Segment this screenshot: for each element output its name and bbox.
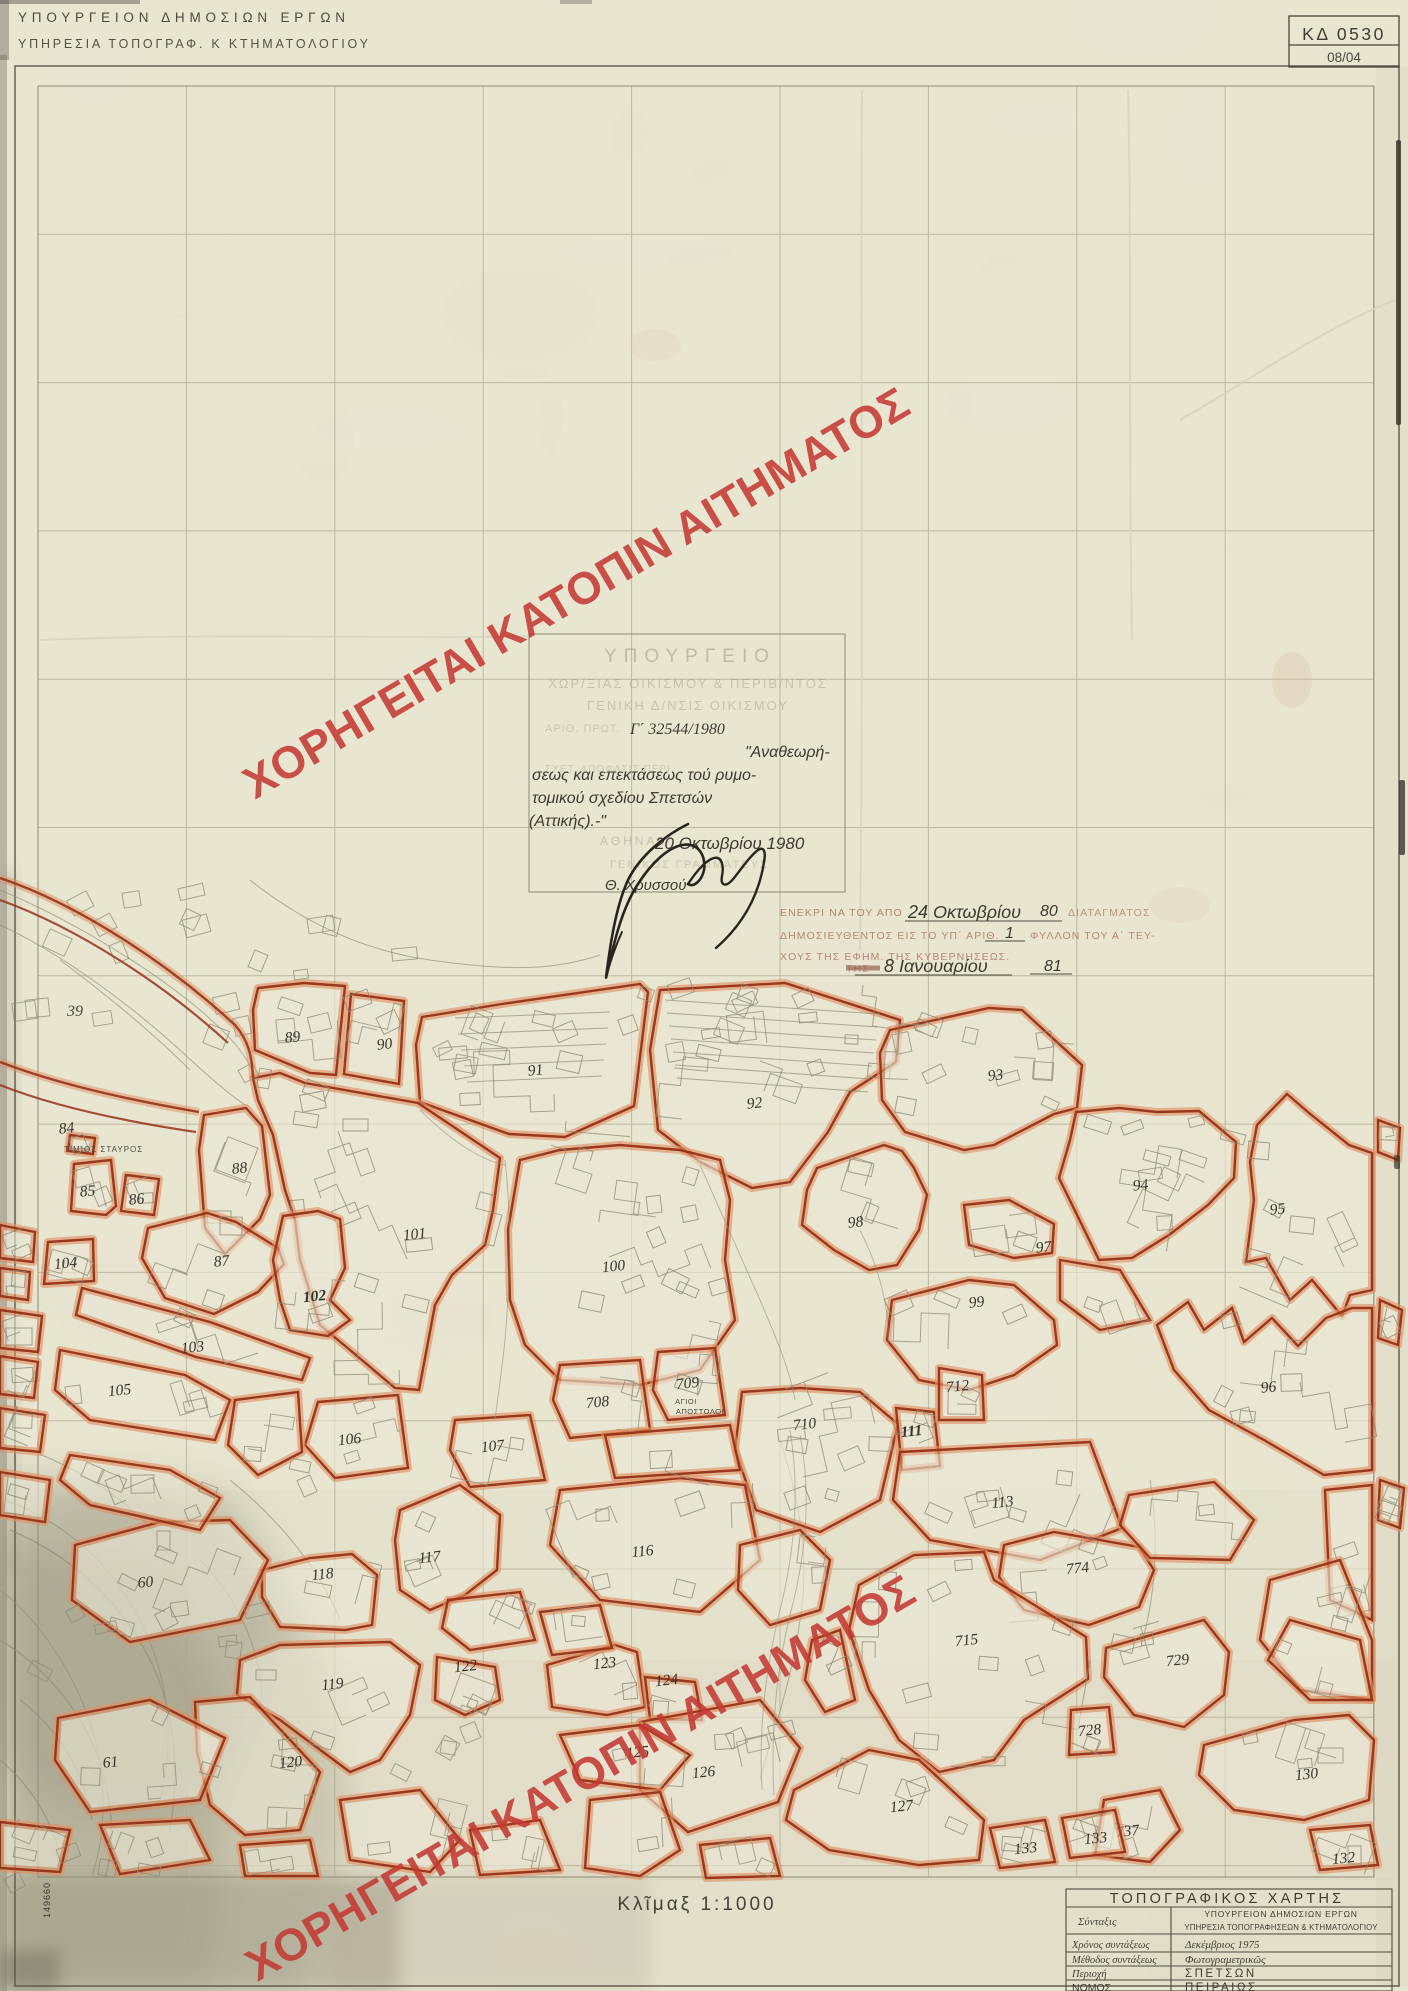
svg-text:60: 60 bbox=[137, 1573, 154, 1592]
svg-text:ΚΔ 0530: ΚΔ 0530 bbox=[1302, 24, 1386, 44]
svg-text:1: 1 bbox=[1005, 925, 1014, 942]
svg-text:774: 774 bbox=[1065, 1559, 1090, 1578]
svg-text:Περιοχή: Περιοχή bbox=[1071, 1969, 1107, 1980]
svg-text:132: 132 bbox=[1331, 1849, 1356, 1868]
svg-text:119: 119 bbox=[321, 1675, 345, 1694]
svg-text:149660: 149660 bbox=[42, 1882, 52, 1918]
svg-text:Σύνταξις: Σύνταξις bbox=[1077, 1916, 1117, 1928]
svg-text:105: 105 bbox=[107, 1381, 132, 1400]
svg-text:100: 100 bbox=[601, 1257, 626, 1276]
svg-text:ΣΠΕΤΣΩΝ: ΣΠΕΤΣΩΝ bbox=[1185, 1968, 1257, 1980]
svg-text:20 Οκτωβρίου 1980: 20 Οκτωβρίου 1980 bbox=[654, 834, 805, 853]
svg-text:92: 92 bbox=[746, 1094, 763, 1113]
svg-text:709: 709 bbox=[675, 1374, 700, 1393]
svg-text:ΥΠΟΥΡΓΕΙΟΝ ΔΗΜΟΣΙΩΝ ΕΡΓΩΝ: ΥΠΟΥΡΓΕΙΟΝ ΔΗΜΟΣΙΩΝ ΕΡΓΩΝ bbox=[1204, 1909, 1357, 1919]
svg-text:102: 102 bbox=[302, 1287, 327, 1306]
svg-text:124: 124 bbox=[654, 1671, 679, 1690]
svg-text:85: 85 bbox=[79, 1182, 96, 1201]
svg-text:"Αναθεωρή-: "Αναθεωρή- bbox=[745, 744, 830, 761]
svg-text:101: 101 bbox=[402, 1225, 427, 1244]
svg-text:130: 130 bbox=[1294, 1765, 1319, 1784]
svg-text:ΦΥΛΛΟΝ ΤΟΥ Α΄ ΤΕΥ-: ΦΥΛΛΟΝ ΤΟΥ Α΄ ΤΕΥ- bbox=[1030, 930, 1156, 942]
svg-text:ΑΡΙΘ. ΠΡΩΤ.: ΑΡΙΘ. ΠΡΩΤ. bbox=[545, 723, 620, 735]
svg-text:ΥΠΗΡΕΣΙΑ ΤΟΠΟΓΡΑΦ. Κ ΚΤΗΜΑΤΟΛΟ: ΥΠΗΡΕΣΙΑ ΤΟΠΟΓΡΑΦ. Κ ΚΤΗΜΑΤΟΛΟΓΙΟΥ bbox=[18, 37, 371, 51]
svg-text:81: 81 bbox=[1044, 958, 1062, 975]
svg-text:120: 120 bbox=[278, 1753, 303, 1772]
svg-text:98: 98 bbox=[847, 1213, 864, 1232]
svg-text:ΕΝΕΚΡΙ ΝΑ ΤΟΥ ΑΠΟ: ΕΝΕΚΡΙ ΝΑ ΤΟΥ ΑΠΟ bbox=[780, 907, 903, 919]
svg-text:728: 728 bbox=[1077, 1721, 1102, 1740]
svg-text:ΔΙΑΤΑΓΜΑΤΟΣ: ΔΙΑΤΑΓΜΑΤΟΣ bbox=[1068, 907, 1151, 919]
svg-text:Κλῖμαξ 1:1000: Κλῖμαξ 1:1000 bbox=[617, 1894, 776, 1915]
svg-text:Δεκέμβριος 1975: Δεκέμβριος 1975 bbox=[1184, 1939, 1260, 1951]
svg-text:39: 39 bbox=[66, 1003, 83, 1020]
svg-text:107: 107 bbox=[480, 1437, 506, 1456]
svg-text:ΑΓΙΟΙ: ΑΓΙΟΙ bbox=[675, 1397, 697, 1406]
svg-text:106: 106 bbox=[337, 1430, 362, 1449]
svg-text:σεως και επεκτάσεως τού ρυμο-: σεως και επεκτάσεως τού ρυμο- bbox=[532, 767, 756, 784]
svg-text:Χρόνος συντάξεως: Χρόνος συντάξεως bbox=[1071, 1940, 1150, 1951]
svg-text:116: 116 bbox=[631, 1542, 655, 1561]
svg-text:ΑΠΟΣΤΟΛΟΙ: ΑΠΟΣΤΟΛΟΙ bbox=[676, 1407, 724, 1416]
svg-text:ΝΟΜΟΣ: ΝΟΜΟΣ bbox=[1072, 1982, 1112, 1991]
svg-text:712: 712 bbox=[945, 1377, 970, 1396]
svg-text:ΔΗΜΟΣΙΕΥΘΕΝΤΟΣ ΕΙΣ ΤΟ ΥΠ΄ ΑΡΙΘ: ΔΗΜΟΣΙΕΥΘΕΝΤΟΣ ΕΙΣ ΤΟ ΥΠ΄ ΑΡΙΘ. bbox=[780, 930, 1000, 942]
svg-text:87: 87 bbox=[213, 1252, 231, 1271]
svg-text:Θ. Χρυσσού: Θ. Χρυσσού bbox=[605, 877, 687, 894]
svg-text:126: 126 bbox=[691, 1763, 716, 1782]
svg-text:ΤΟΠΟΓΡΑΦΙΚΟΣ ΧΑΡΤΗΣ: ΤΟΠΟΓΡΑΦΙΚΟΣ ΧΑΡΤΗΣ bbox=[1110, 1891, 1345, 1907]
svg-text:103: 103 bbox=[180, 1338, 205, 1357]
svg-text:8 Ιανουαρίου: 8 Ιανουαρίου bbox=[884, 956, 988, 976]
svg-text:ΥΠΗΡΕΣΙΑ ΤΟΠΟΓΡΑΦΗΣΕΩΝ & ΚΤΗΜΑ: ΥΠΗΡΕΣΙΑ ΤΟΠΟΓΡΑΦΗΣΕΩΝ & ΚΤΗΜΑΤΟΛΟΓΙΟΥ bbox=[1184, 1923, 1378, 1932]
svg-text:ΧΩΡ/ΞΙΑΣ ΟΙΚΙΣΜΟΥ & ΠΕΡΙΒ/ΝΤΟΣ: ΧΩΡ/ΞΙΑΣ ΟΙΚΙΣΜΟΥ & ΠΕΡΙΒ/ΝΤΟΣ bbox=[548, 676, 828, 691]
svg-text:113: 113 bbox=[991, 1493, 1015, 1512]
svg-text:97: 97 bbox=[1035, 1238, 1053, 1257]
svg-text:123: 123 bbox=[592, 1654, 617, 1673]
svg-text:24 Οκτωβρίου: 24 Οκτωβρίου bbox=[907, 902, 1021, 922]
svg-text:Μέθοδος συντάξεως: Μέθοδος συντάξεως bbox=[1071, 1955, 1157, 1966]
svg-text:91: 91 bbox=[527, 1061, 544, 1080]
svg-text:122: 122 bbox=[453, 1657, 478, 1676]
svg-text:715: 715 bbox=[954, 1631, 979, 1650]
svg-text:127: 127 bbox=[889, 1797, 915, 1816]
svg-text:133: 133 bbox=[1013, 1839, 1038, 1858]
svg-text:93: 93 bbox=[987, 1066, 1004, 1085]
svg-text:84: 84 bbox=[58, 1119, 75, 1138]
svg-text:ΥΠΟΥΡΓΕΙΟ: ΥΠΟΥΡΓΕΙΟ bbox=[604, 646, 776, 667]
svg-text:104: 104 bbox=[53, 1254, 78, 1273]
svg-text:Γ΄ 32544/1980: Γ΄ 32544/1980 bbox=[629, 721, 725, 738]
svg-text:61: 61 bbox=[102, 1753, 119, 1772]
svg-text:ΓΕΝΙΚΗ Δ/ΝΣΙΣ ΟΙΚΙΣΜΟΥ: ΓΕΝΙΚΗ Δ/ΝΣΙΣ ΟΙΚΙΣΜΟΥ bbox=[587, 698, 789, 713]
svg-text:(Αττικής).-": (Αττικής).-" bbox=[529, 813, 607, 830]
svg-text:ΤΙΜΙΟΣ ΣΤΑΥΡΟΣ: ΤΙΜΙΟΣ ΣΤΑΥΡΟΣ bbox=[64, 1145, 143, 1154]
svg-text:88: 88 bbox=[231, 1159, 248, 1178]
svg-text:Φωτογραμετρικῶς: Φωτογραμετρικῶς bbox=[1185, 1954, 1266, 1966]
svg-text:τομικού σχεδίου Σπετσών: τομικού σχεδίου Σπετσών bbox=[532, 790, 712, 807]
svg-text:729: 729 bbox=[1165, 1651, 1190, 1670]
svg-text:99: 99 bbox=[968, 1293, 985, 1312]
svg-text:95: 95 bbox=[1269, 1200, 1286, 1219]
svg-text:08/04: 08/04 bbox=[1327, 50, 1361, 65]
svg-text:ΠΕΙΡΑΙΩΣ: ΠΕΙΡΑΙΩΣ bbox=[1185, 1982, 1258, 1991]
svg-text:90: 90 bbox=[376, 1035, 393, 1054]
svg-text:117: 117 bbox=[418, 1548, 443, 1567]
svg-text:80: 80 bbox=[1040, 903, 1058, 920]
svg-text:133: 133 bbox=[1083, 1829, 1108, 1848]
svg-text:ΥΠΟΥΡΓΕΙΟΝ ΔΗΜΟΣΙΩΝ ΕΡΓΩΝ: ΥΠΟΥΡΓΕΙΟΝ ΔΗΜΟΣΙΩΝ ΕΡΓΩΝ bbox=[18, 10, 350, 25]
svg-text:94: 94 bbox=[1132, 1176, 1149, 1195]
svg-text:118: 118 bbox=[311, 1565, 335, 1584]
svg-text:708: 708 bbox=[585, 1393, 610, 1412]
svg-text:89: 89 bbox=[284, 1028, 301, 1047]
svg-text:86: 86 bbox=[128, 1190, 145, 1209]
svg-text:111: 111 bbox=[900, 1422, 923, 1441]
svg-text:96: 96 bbox=[1260, 1378, 1277, 1397]
